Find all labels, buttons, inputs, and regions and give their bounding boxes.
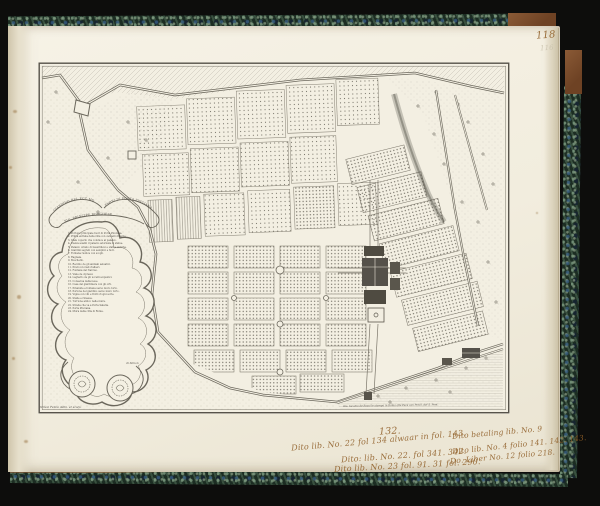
legend-signature: di Simon [126, 361, 139, 365]
foxing-spot [13, 110, 17, 113]
foxing-spot [9, 166, 12, 169]
wall-building-small [442, 358, 452, 365]
page-gutter-edge [8, 26, 32, 472]
foxing-spot [17, 295, 21, 299]
foxing-spot [536, 212, 538, 214]
marbled-board-right-edge [560, 86, 581, 478]
foxing-spot [12, 357, 15, 360]
south-gate [364, 392, 372, 400]
page-number: 118 [536, 29, 556, 41]
engraved-garden-map: GIARDINO DEL ECC.MO SIG. PRINCIPE BORGHE… [38, 62, 510, 414]
foxing-spot [24, 440, 28, 443]
page-number-ghost: 116 [540, 44, 554, 53]
legend-text: 1. Portone principale fuori di Porta Pin… [68, 232, 142, 314]
side-gate [128, 151, 136, 159]
leather-edge-right [565, 50, 582, 94]
engraver-imprint: Simon Felice delin. et sculp. [40, 405, 81, 409]
page-fore-edge [544, 28, 559, 470]
photographed-book-page: GIARDINO DEL ECC.MO SIG. PRINCIPE BORGHE… [0, 0, 600, 506]
